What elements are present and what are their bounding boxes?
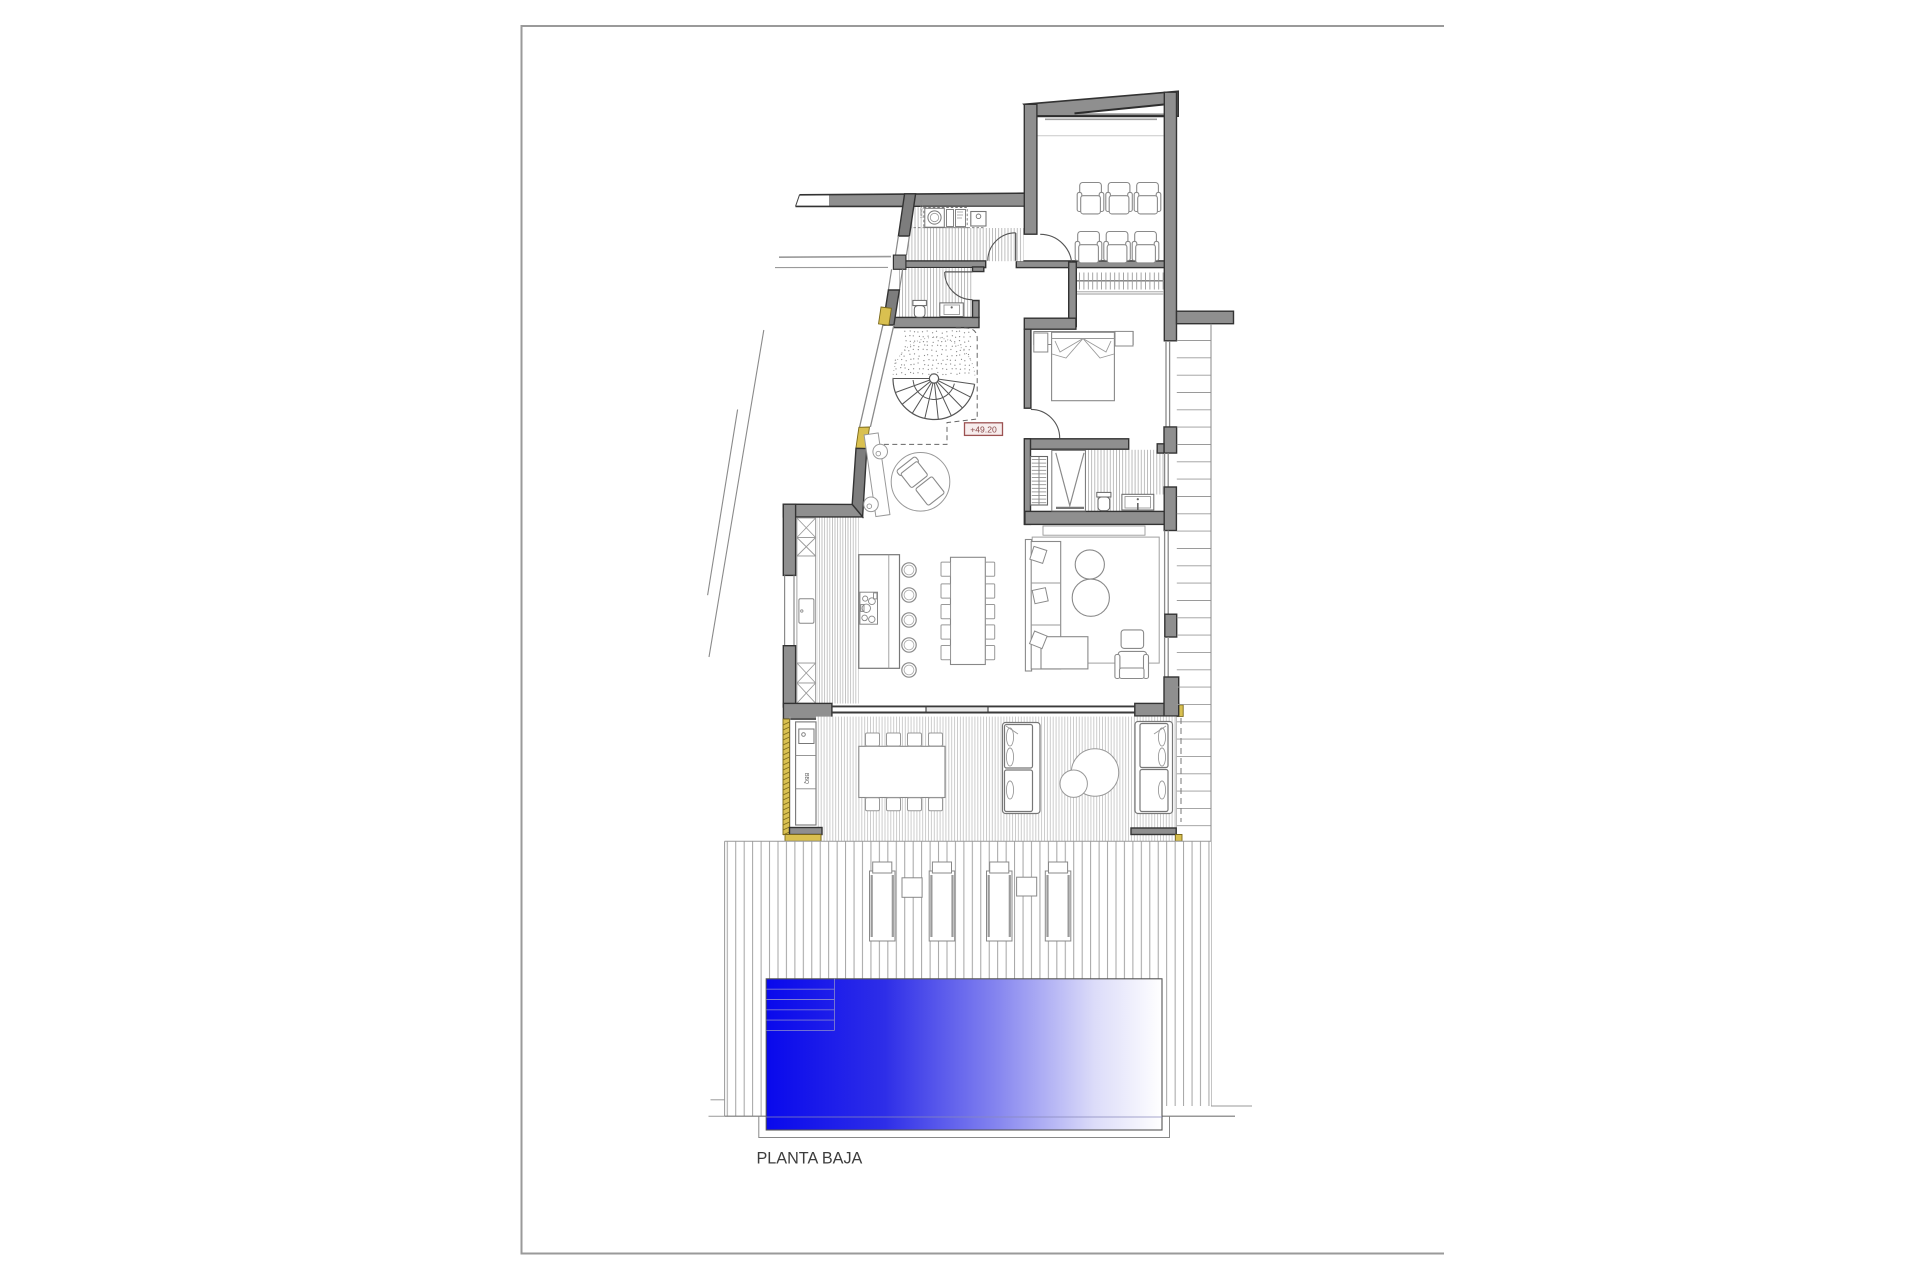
svg-text:BBQ: BBQ: [803, 773, 809, 784]
svg-text:LAVADORA: LAVADORA: [920, 199, 924, 218]
svg-text:PLANTA BAJA: PLANTA BAJA: [757, 1150, 863, 1168]
svg-text:+49.20: +49.20: [970, 425, 997, 435]
